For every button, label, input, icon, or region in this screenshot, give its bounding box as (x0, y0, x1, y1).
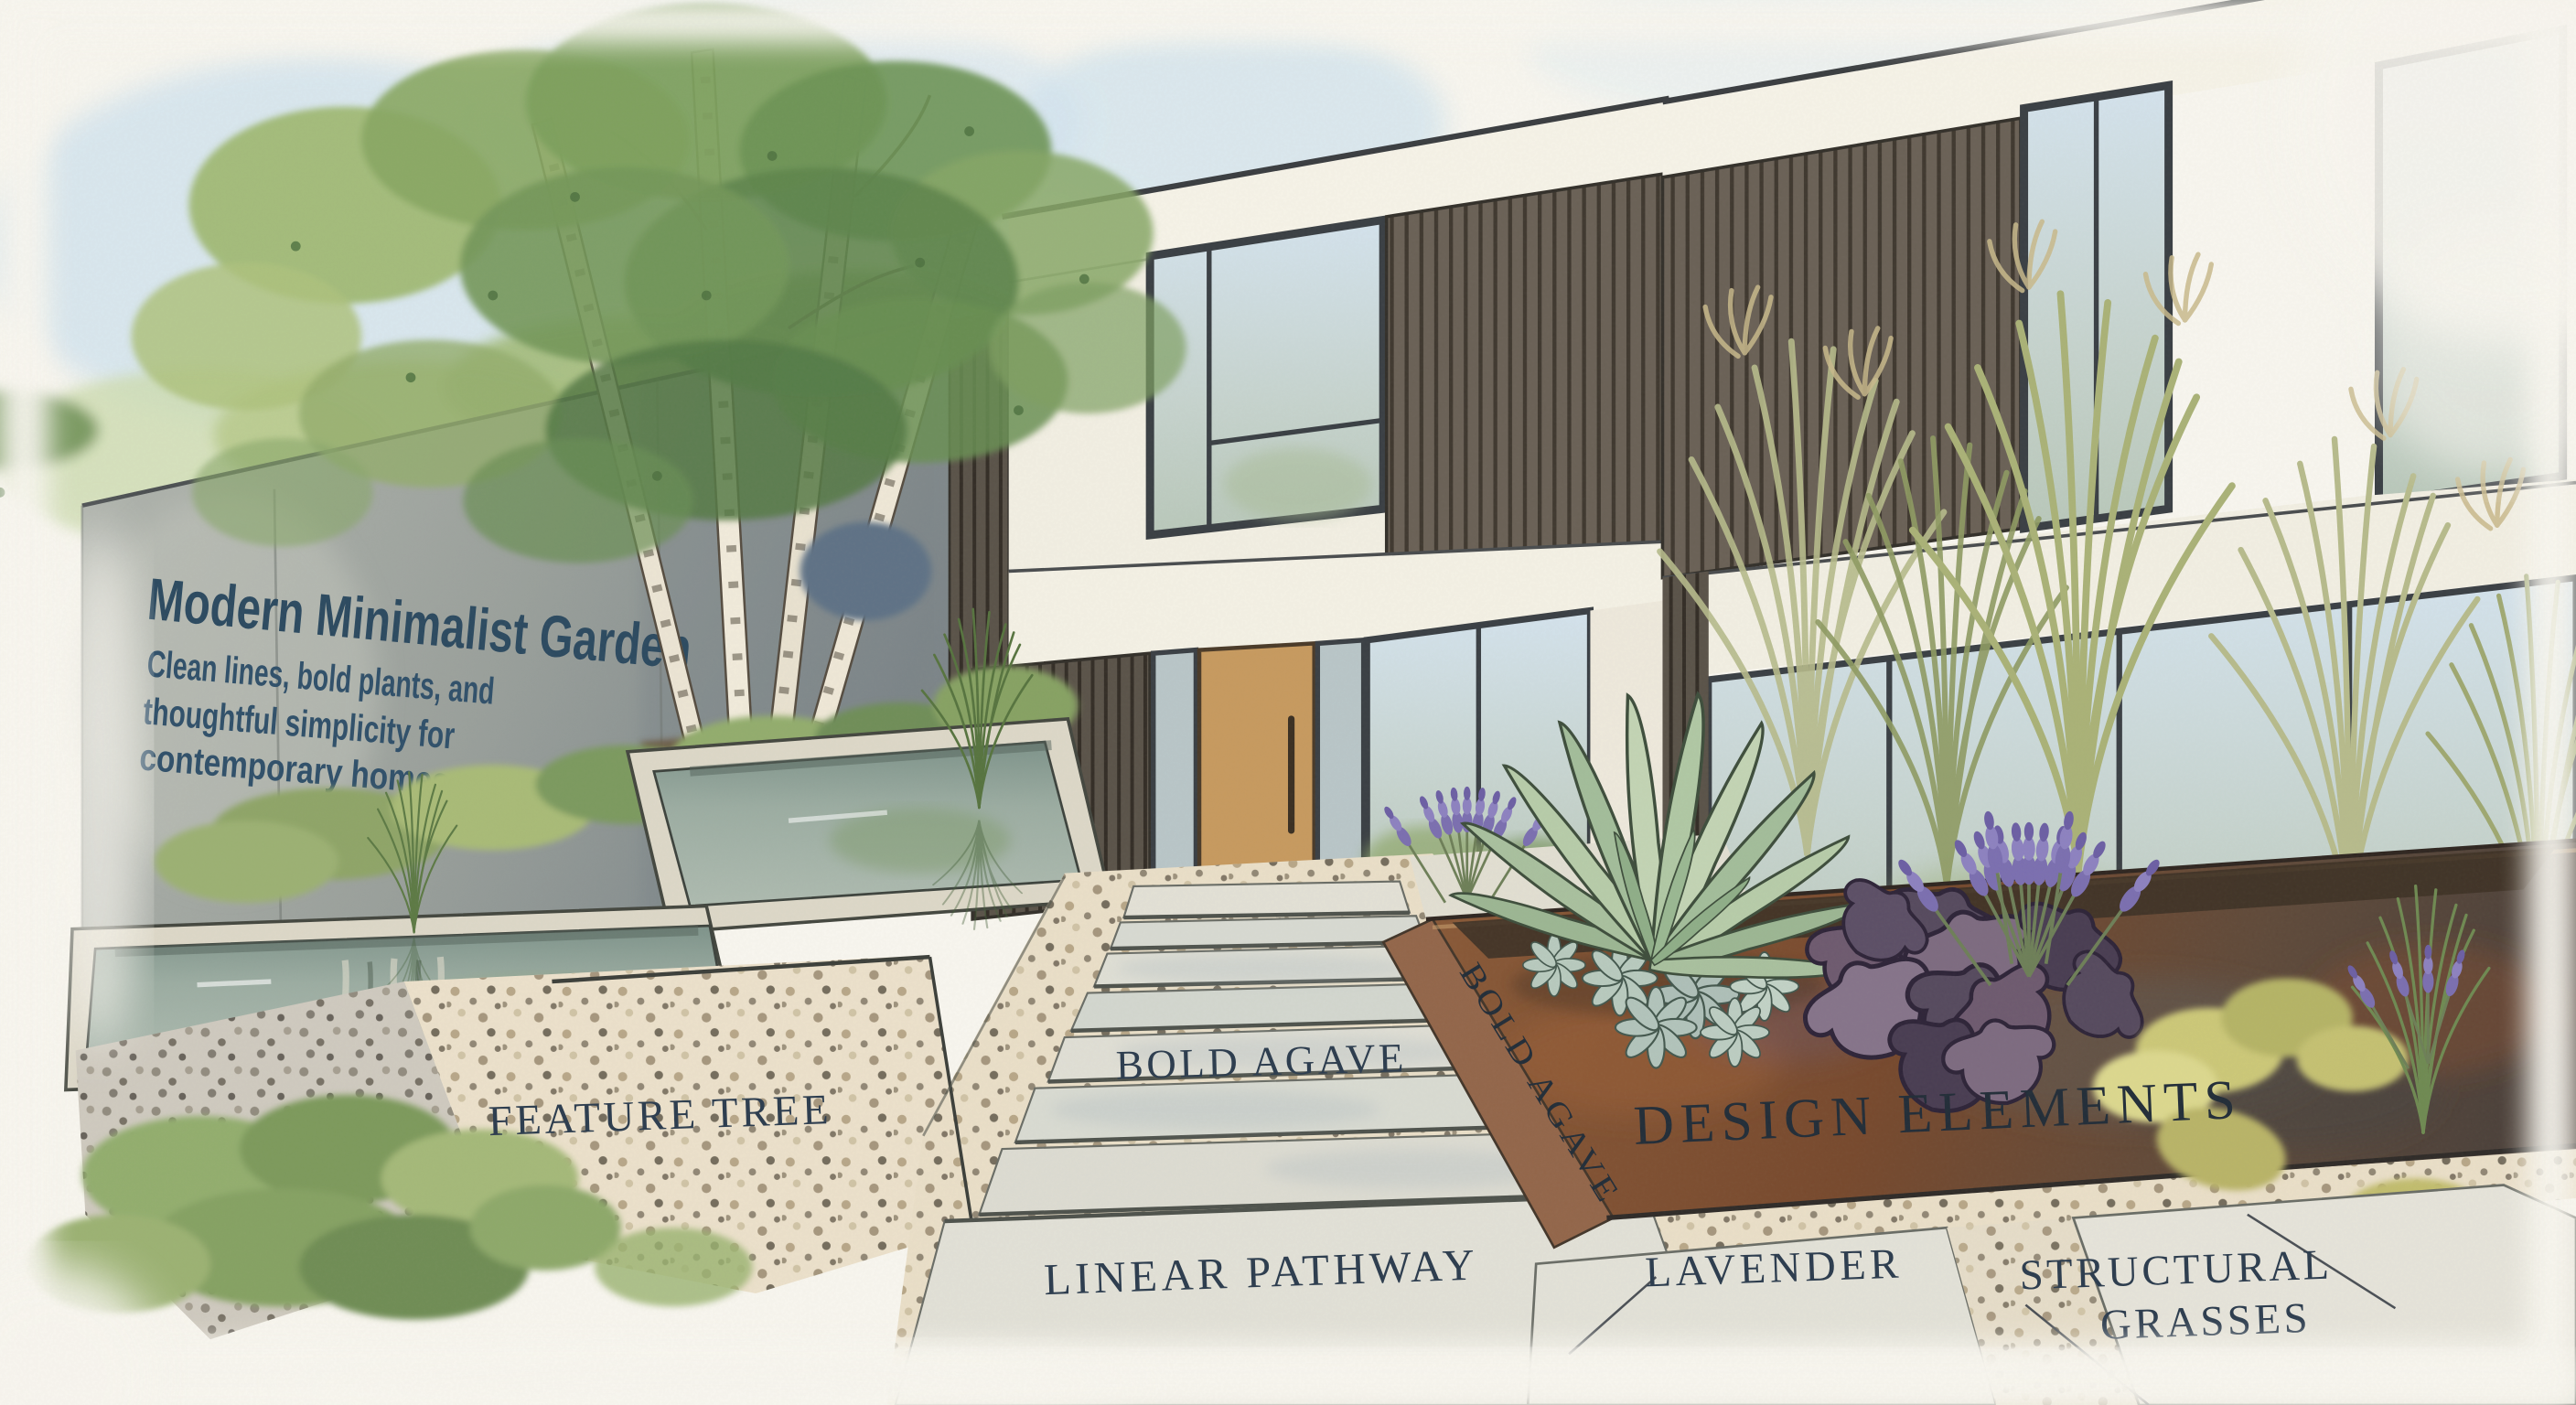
watercolor-garden-page: Modern Minimalist Garden Clean lines, bo… (0, 0, 2576, 1405)
paper-texture-overlay (0, 0, 2576, 1405)
garden-illustration: Modern Minimalist Garden Clean lines, bo… (0, 0, 2576, 1405)
